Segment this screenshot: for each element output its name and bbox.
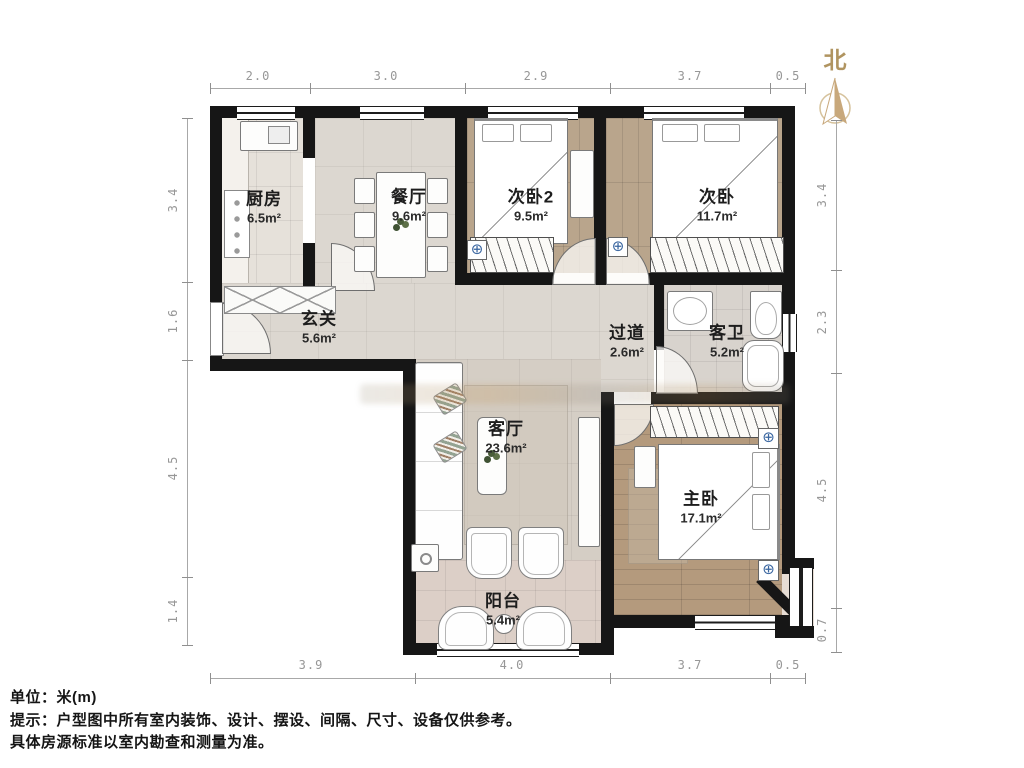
watermark (360, 384, 790, 404)
room-name: 阳台 (485, 587, 521, 612)
wall-segment (455, 273, 554, 285)
dining-chair (427, 212, 448, 238)
dim-bottom-1: 3.9 (299, 658, 324, 672)
pillow (752, 452, 770, 488)
room-name: 次卧2 (508, 183, 554, 208)
dim-top-4: 3.7 (678, 69, 703, 83)
room-label-living: 客厅 23.6m² (485, 415, 526, 456)
bath-window (782, 314, 797, 352)
wall-segment (782, 404, 795, 574)
wall-segment (648, 273, 782, 285)
north-label: 北 (824, 41, 847, 75)
room-area: 17.1m² (680, 511, 721, 526)
wall-segment (775, 626, 814, 638)
pillow (662, 124, 698, 142)
room-name: 玄关 (301, 305, 337, 330)
wall-segment (455, 106, 467, 285)
footer-note: 具体房源标准以室内勘查和测量为准。 (10, 731, 274, 752)
dim-top-5: 0.5 (776, 69, 801, 83)
bay-window (789, 568, 813, 626)
room-label-master: 主卧 17.1m² (680, 485, 721, 526)
radiator-icon: ⊕ (758, 428, 779, 449)
pillow (482, 124, 514, 142)
room-label-kitchen: 厨房 6.5m² (246, 185, 282, 226)
room-name: 客卫 (709, 319, 745, 344)
dim-left-4: 1.4 (166, 599, 180, 624)
room-label-bedroom2: 次卧2 9.5m² (508, 183, 554, 224)
dim-line-top (210, 88, 805, 89)
dim-top-3: 2.9 (524, 69, 549, 83)
radiator-icon: ⊕ (467, 240, 487, 260)
pillow (752, 494, 770, 530)
footer-unit: 单位：米(m) (10, 686, 97, 707)
toilet (750, 291, 782, 339)
pillow (704, 124, 740, 142)
room-label-bath: 客卫 5.2m² (709, 319, 745, 360)
lounge-chair (516, 606, 572, 650)
room-name: 餐厅 (391, 183, 427, 208)
room-area: 6.5m² (246, 211, 282, 226)
sink-basin (268, 126, 290, 144)
footer-tip: 提示：户型图中所有室内装饰、设计、摆设、间隔、尺寸、设备仅供参考。 (10, 709, 522, 730)
dining-chair (354, 178, 375, 204)
dining-chair (427, 246, 448, 272)
dining-window (360, 106, 424, 120)
room-area: 5.2m² (709, 345, 745, 360)
pillow (520, 124, 552, 142)
dining-chair (354, 246, 375, 272)
kitchen-window (237, 106, 295, 120)
room-name: 客厅 (485, 415, 526, 440)
dim-line-left (187, 118, 188, 645)
room-name: 主卧 (680, 485, 721, 510)
tv-cabinet (578, 417, 600, 547)
room-area: 5.6m² (301, 331, 337, 346)
master-bench (634, 446, 656, 488)
room-label-hall: 玄关 5.6m² (301, 305, 337, 346)
room-area: 2.6m² (609, 345, 645, 360)
dim-line-right (836, 120, 837, 652)
room-area: 23.6m² (485, 441, 526, 456)
armchair (518, 527, 564, 579)
master-window (695, 615, 775, 630)
dim-right-2: 2.3 (815, 310, 829, 335)
bath-sink (667, 291, 713, 331)
bedroom2-desk (570, 150, 594, 218)
dim-left-3: 4.5 (166, 456, 180, 481)
dim-bottom-2: 4.0 (500, 658, 525, 672)
dim-top-2: 3.0 (374, 69, 399, 83)
dim-left-2: 1.6 (166, 309, 180, 334)
wall-segment (613, 615, 695, 628)
armchair (466, 527, 512, 579)
dim-left-1: 3.4 (166, 188, 180, 213)
bedroom-wardrobe (650, 237, 784, 273)
wall-segment (303, 106, 315, 158)
dim-bottom-3: 3.7 (678, 658, 703, 672)
room-area: 11.7m² (697, 209, 737, 224)
dim-right-3: 4.5 (815, 478, 829, 503)
room-label-corridor: 过道 2.6m² (609, 319, 645, 360)
radiator-icon: ⊕ (758, 560, 779, 581)
dining-chair (427, 178, 448, 204)
dim-line-bottom (210, 678, 805, 679)
dim-top-1: 2.0 (246, 69, 271, 83)
room-area: 9.5m² (508, 209, 554, 224)
wall-segment (654, 283, 664, 350)
dim-right-1: 3.4 (815, 183, 829, 208)
room-name: 次卧 (697, 183, 737, 208)
room-label-dining: 餐厅 9.6m² (391, 183, 427, 224)
floorplan-page: ⊕ ⊕ ⊕ ⊕ 厨房 6.5m² 餐厅 9.6m² 次卧2 9.5m² 次卧 (0, 0, 1024, 768)
room-area: 9.6m² (391, 209, 427, 224)
room-label-bedroom: 次卧 11.7m² (697, 183, 737, 224)
room-name: 过道 (609, 319, 645, 344)
dining-chair (354, 212, 375, 238)
room-area: 5.4m² (485, 613, 521, 628)
room-label-balcony: 阳台 5.4m² (485, 587, 521, 628)
compass-icon (812, 74, 858, 130)
wall-segment (210, 359, 416, 371)
radiator-icon: ⊕ (608, 237, 628, 257)
dim-bottom-4: 0.5 (776, 658, 801, 672)
room-name: 厨房 (246, 185, 282, 210)
dim-right-4: 0.7 (815, 618, 829, 643)
lamp-icon (420, 553, 432, 565)
